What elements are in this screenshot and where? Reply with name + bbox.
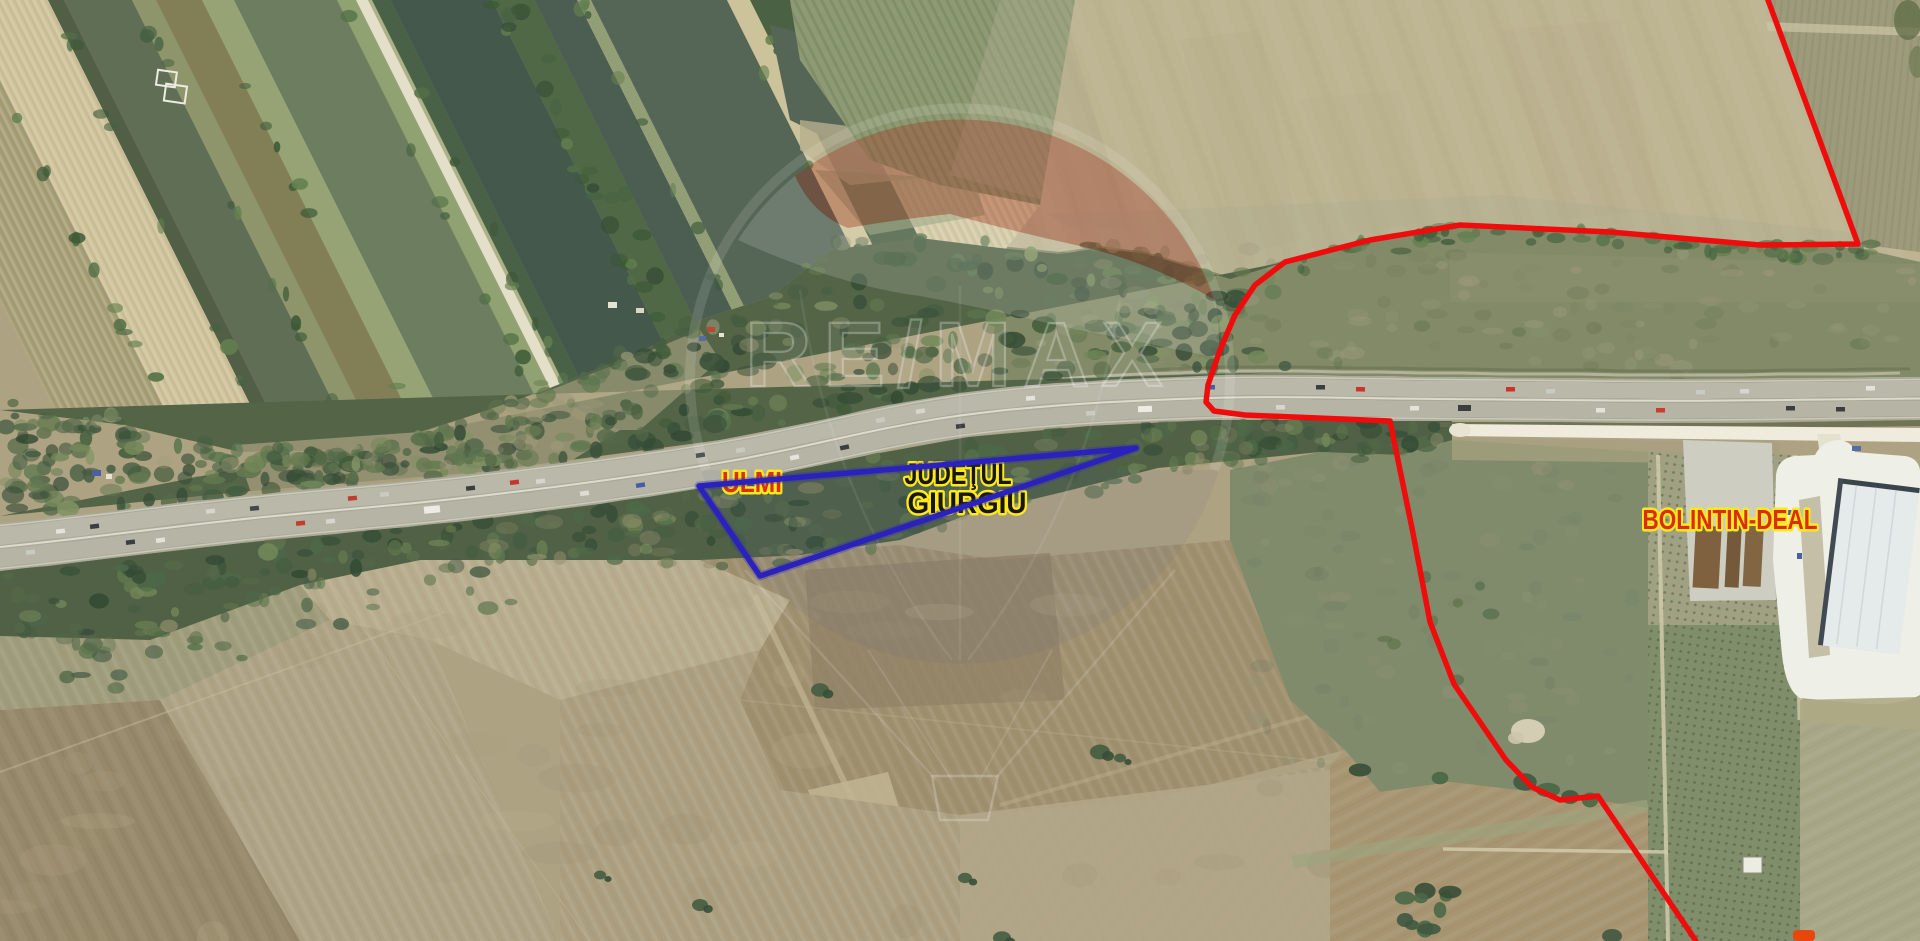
svg-text:BOLINTIN-DEAL: BOLINTIN-DEAL — [1643, 504, 1818, 535]
